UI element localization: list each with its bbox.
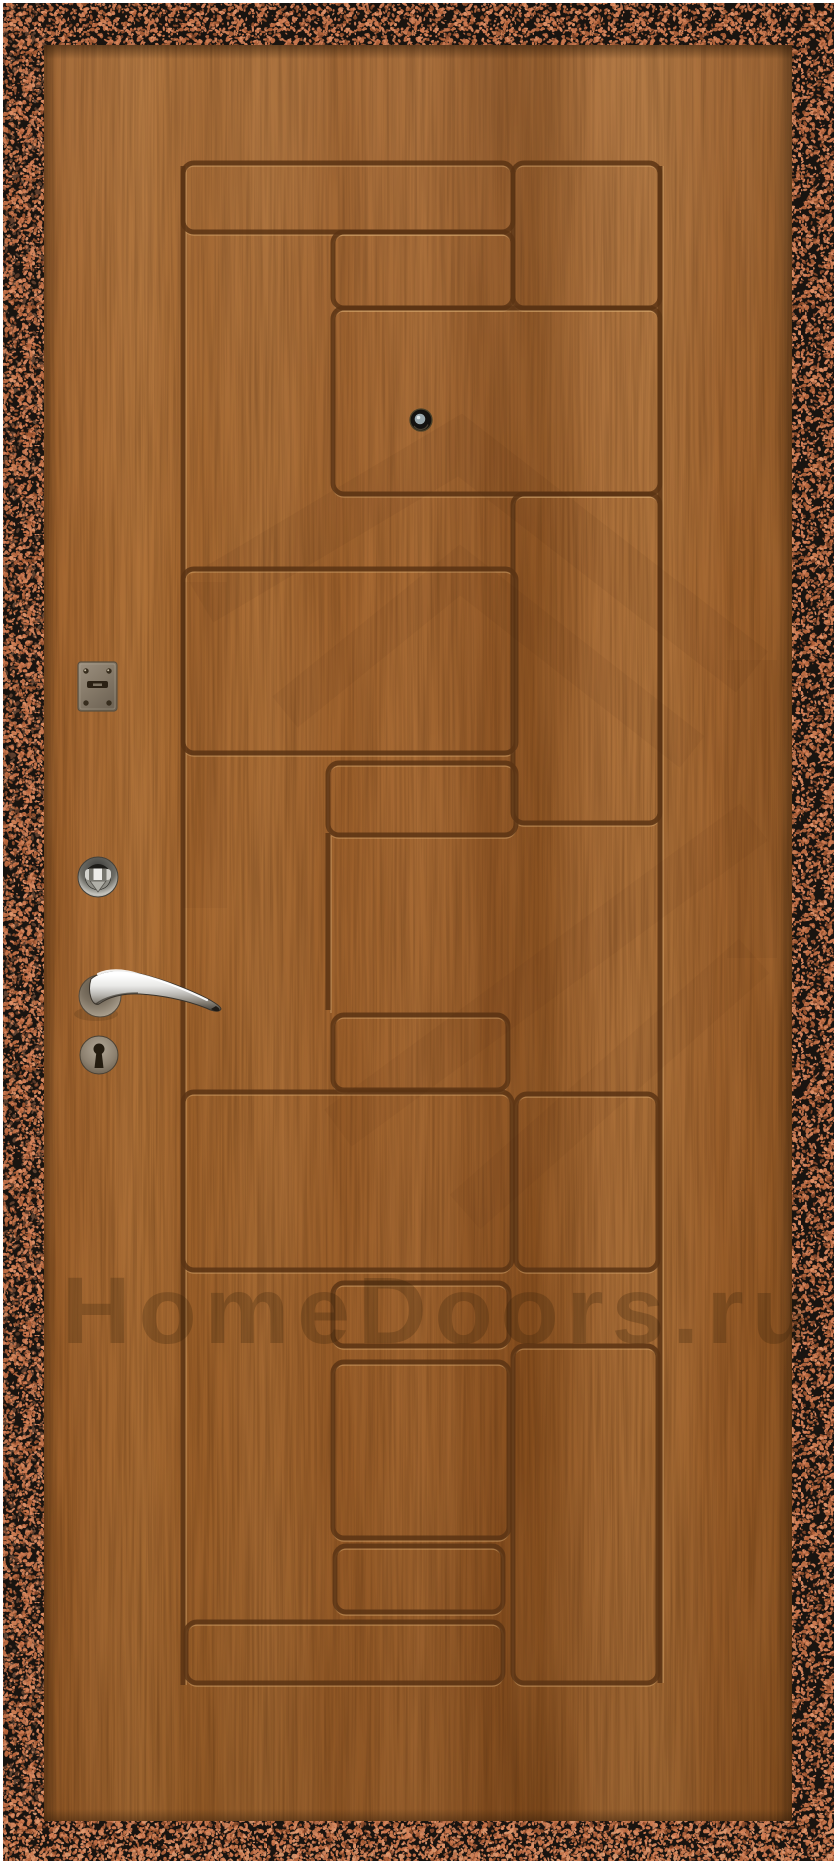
svg-text:HomeDoors.ru: HomeDoors.ru — [62, 1258, 818, 1364]
